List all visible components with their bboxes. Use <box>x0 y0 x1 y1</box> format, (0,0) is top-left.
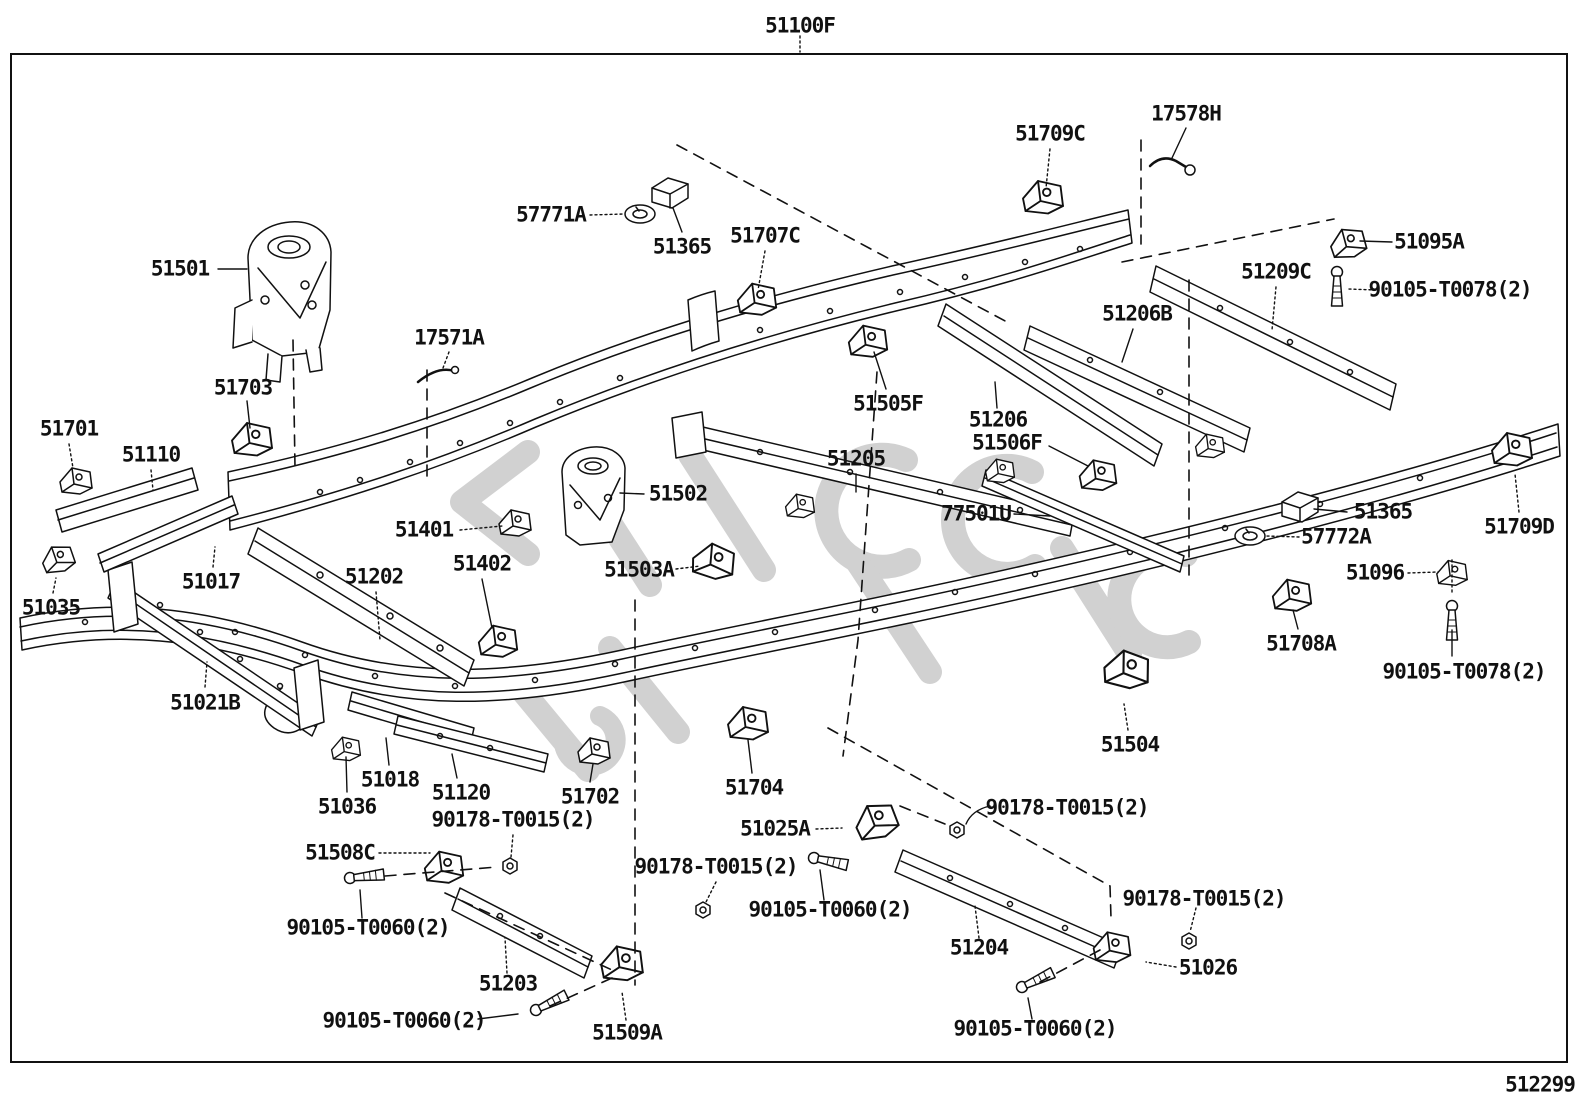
part-number-label: 51708A <box>1266 634 1336 655</box>
part-17578H <box>1150 158 1186 167</box>
part-number-label: 51365 <box>653 237 711 258</box>
part-number-label: 51508C <box>305 843 375 864</box>
bolt-90105-T0060-d <box>1015 968 1055 995</box>
part-number-label: 51503A <box>604 560 674 581</box>
rail-piece-51120 <box>394 716 548 772</box>
nut-90178-T0015-d <box>1182 933 1196 949</box>
part-51703 <box>232 423 272 456</box>
part-number-label: 90105-T0060(2) <box>286 918 449 939</box>
part-51401 <box>499 510 531 536</box>
part-number-label: 90105-T0078(2) <box>1382 662 1545 683</box>
part-number-label: 51095A <box>1394 232 1464 253</box>
part-number-label: 51206 <box>969 410 1027 431</box>
part-number-label: 51202 <box>345 567 403 588</box>
part-number-label: 51709C <box>1015 124 1085 145</box>
part-number-label: 51704 <box>725 778 783 799</box>
part-number-label: 51365 <box>1354 502 1412 523</box>
part-number-label: 51709D <box>1484 517 1554 538</box>
part-number-label: 90105-T0060(2) <box>322 1011 485 1032</box>
parts-diagram-sheet: 51100F <box>0 0 1592 1099</box>
part-51709D <box>1492 433 1532 466</box>
part-17571A-tip <box>452 367 459 374</box>
part-number-label: 90178-T0015(2) <box>985 798 1148 819</box>
part-51365-front <box>652 178 688 208</box>
part-number-label: 90178-T0015(2) <box>431 810 594 831</box>
mount-mid-3 <box>1196 434 1225 457</box>
bolt-90105-T0060-b <box>807 851 848 870</box>
part-number-label: 57772A <box>1301 527 1371 548</box>
engine-mount-51501 <box>233 222 331 382</box>
part-number-label: 90178-T0015(2) <box>634 857 797 878</box>
part-number-label: 51021B <box>170 693 240 714</box>
nut-90178-T0015-c <box>950 822 964 838</box>
part-51503A <box>690 540 738 582</box>
part-51508C <box>425 852 463 883</box>
part-51707C <box>738 284 776 315</box>
part-number-label: 51702 <box>561 787 619 808</box>
part-51701 <box>60 468 92 494</box>
part-number-label: 51017 <box>182 572 240 593</box>
nut-90178-T0015-a <box>503 858 517 874</box>
part-51702 <box>578 738 610 764</box>
part-number-label: 90105-T0060(2) <box>748 900 911 921</box>
sheet-code-label: 51100F <box>765 16 835 37</box>
part-51709C <box>1023 181 1063 214</box>
frame-drawing <box>0 0 1592 1099</box>
part-51504 <box>1102 648 1151 690</box>
part-number-label: 57771A <box>516 205 586 226</box>
part-17571A <box>418 370 454 382</box>
part-number-label: 51501 <box>151 259 209 280</box>
part-number-label: 51504 <box>1101 735 1159 756</box>
part-number-label: 51203 <box>479 974 537 995</box>
part-number-label: 51505F <box>853 394 923 415</box>
mount-mid-1 <box>786 494 815 517</box>
part-number-label: 51707C <box>730 226 800 247</box>
part-number-label: 51206B <box>1102 304 1172 325</box>
bolt-90105-T0060-a <box>344 869 384 884</box>
part-number-label: 51703 <box>214 378 272 399</box>
part-number-label: 51036 <box>318 797 376 818</box>
part-57772A <box>1235 527 1265 545</box>
part-number-label: 51035 <box>22 598 80 619</box>
part-number-label: 51205 <box>827 449 885 470</box>
part-number-label: 51204 <box>950 938 1008 959</box>
part-number-label: 90105-T0060(2) <box>953 1019 1116 1040</box>
part-number-label: 51502 <box>649 484 707 505</box>
part-51704 <box>728 707 768 740</box>
crossmember-51203 <box>452 888 592 978</box>
part-number-label: 51209C <box>1241 262 1311 283</box>
crossmember-51204 <box>895 850 1122 968</box>
part-number-label: 51026 <box>1179 958 1237 979</box>
part-51509A <box>601 946 643 980</box>
part-number-label: 51096 <box>1346 563 1404 584</box>
part-51025A <box>852 800 901 843</box>
crossmember-51209C <box>1150 266 1396 410</box>
part-number-label: 51506F <box>972 433 1042 454</box>
drawing-number-label: 512299 <box>1505 1075 1575 1096</box>
part-51505F <box>849 326 887 357</box>
part-17578H-eye <box>1185 165 1195 175</box>
part-51035 <box>40 543 77 575</box>
part-57771A <box>625 205 655 223</box>
part-number-label: 90105-T0078(2) <box>1368 280 1531 301</box>
part-51708A <box>1273 580 1311 611</box>
part-number-label: 51018 <box>361 770 419 791</box>
part-number-label: 51025A <box>740 819 810 840</box>
part-number-label: 51401 <box>395 520 453 541</box>
part-number-label: 51509A <box>592 1023 662 1044</box>
part-number-label: 17578H <box>1151 104 1221 125</box>
part-number-label: 17571A <box>414 328 484 349</box>
part-number-label: 51402 <box>453 554 511 575</box>
part-number-label: 51110 <box>122 445 180 466</box>
bolt-90105-T0078-upper <box>1332 267 1343 307</box>
nut-90178-T0015-b <box>696 902 710 918</box>
part-number-label: 51120 <box>432 783 490 804</box>
part-51095A <box>1329 226 1368 259</box>
part-number-label: 90178-T0015(2) <box>1122 889 1285 910</box>
part-51402 <box>479 626 517 657</box>
part-number-label: 51701 <box>40 419 98 440</box>
part-number-label: 77501U <box>941 504 1011 525</box>
body-mount-51502 <box>562 447 625 545</box>
